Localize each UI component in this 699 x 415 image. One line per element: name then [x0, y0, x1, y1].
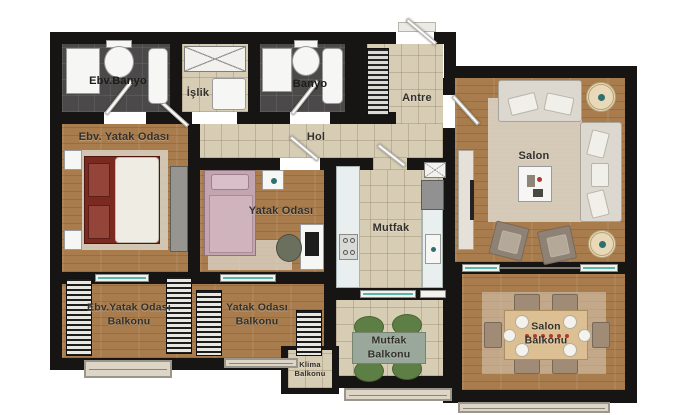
islik-label: İşlik	[187, 86, 209, 100]
wall-yatak-top-1	[200, 158, 280, 170]
fridge-icon	[421, 180, 444, 210]
banyo-label: Banyo	[293, 77, 328, 91]
yatak-balcony-glass-door	[220, 274, 276, 282]
plant-icon-top	[586, 82, 616, 112]
hol-label: Hol	[307, 130, 325, 144]
floor-plan-canvas: Salon Balkonu Mutfak Balkonu Ebv.Banyo İ…	[0, 0, 699, 415]
sofa-cushion	[586, 129, 610, 159]
yatak-bed-blanket	[209, 195, 253, 253]
salon-armchair-right	[537, 225, 577, 265]
plant-icon-bottom	[588, 230, 616, 258]
ebv-bed-pillow-2	[88, 205, 110, 239]
ebv-balcony-glass-door	[95, 274, 149, 282]
antre-shoe-cabinet-icon	[367, 48, 389, 116]
yatak-nightstand-icon	[262, 170, 284, 190]
salon-sofa-top	[498, 80, 582, 122]
wall-banyo-antre	[345, 32, 367, 124]
mutfak-label: Mutfak	[373, 221, 410, 235]
ebv-balkon-label: Ebv.Yatak Odası Balkonu	[87, 301, 171, 328]
wall-islik-banyo	[248, 32, 260, 124]
ebv-balcony-railing	[84, 360, 172, 378]
mutfak-balcony-railing	[344, 388, 452, 401]
salon-balcony-railing	[458, 402, 610, 413]
antre-label: Antre	[402, 91, 432, 105]
yatak-bed-pillow	[211, 174, 249, 190]
salon-balcony-window-right	[580, 264, 618, 272]
sofa-cushion	[507, 92, 539, 116]
ebv-yatak-odasi-label: Ebv. Yatak Odası	[79, 130, 170, 144]
sink-icon	[425, 234, 441, 264]
dining-chair	[484, 322, 502, 348]
wall-bath-bottom-1	[50, 112, 104, 124]
wall-kitchen-left	[324, 158, 336, 288]
klima-balkon-label: Klima Balkonu	[295, 360, 326, 378]
dining-chair	[592, 322, 610, 348]
wall-bedroom-balcony	[50, 272, 336, 284]
yatak-balkon-label: Yatak Odası Balkonu	[226, 301, 288, 328]
sofa-cushion	[586, 189, 610, 219]
mutfak-balcony-window	[360, 290, 416, 298]
mutfak-balcony-door	[420, 290, 446, 298]
salon-label: Salon	[519, 149, 550, 163]
wall-bedroom-divider	[188, 124, 200, 272]
wall-bath-bottom-3	[237, 112, 290, 124]
tv-icon	[470, 180, 474, 220]
ebv-nightstand-top-icon	[64, 150, 82, 170]
banyo-toilet-icon	[292, 46, 320, 76]
wall-mutfakbalkon-bottom	[324, 376, 448, 388]
islik-x-cabinet-icon	[184, 46, 246, 72]
mutfak-balkonu-label: Mutfak Balkonu	[368, 334, 411, 361]
washing-machine-icon	[212, 78, 246, 110]
ebv-bathtub-icon	[148, 48, 168, 104]
kitchen-counter-left	[336, 166, 360, 288]
coffee-table	[518, 166, 552, 202]
yatak-desk-chair	[276, 234, 302, 262]
ebv-bed-pillow-1	[88, 163, 110, 197]
ebv-double-bed	[84, 156, 160, 244]
louvre-panel-4	[296, 310, 322, 356]
louvre-panel-3	[196, 290, 222, 356]
yatak-odasi-label: Yatak Odası	[249, 204, 314, 218]
salon-balcony-threshold	[500, 267, 580, 269]
banyo-shower-icon	[262, 48, 292, 92]
wall-left	[50, 32, 62, 370]
salon-balkonu-label: Salon Balkonu	[525, 320, 568, 347]
ebv-wardrobe	[170, 166, 188, 252]
wall-salon-top	[444, 66, 637, 78]
yatak-monitor-icon	[305, 232, 319, 256]
wall-antre-salon-upper	[443, 78, 455, 95]
ebv-bed-duvet	[115, 157, 159, 243]
yatak-balcony-railing	[224, 358, 298, 368]
salon-sofa-right	[580, 122, 622, 222]
sofa-cushion	[591, 163, 609, 187]
ebv-banyo-label: Ebv.Banyo	[89, 74, 147, 88]
wall-right	[625, 66, 637, 403]
salon-balcony-window-left	[462, 264, 500, 272]
ebv-nightstand-bottom-icon	[64, 230, 82, 250]
stove-icon	[339, 234, 358, 260]
sofa-cushion	[543, 92, 574, 115]
kitchen-x-cabinet-icon	[424, 162, 446, 178]
